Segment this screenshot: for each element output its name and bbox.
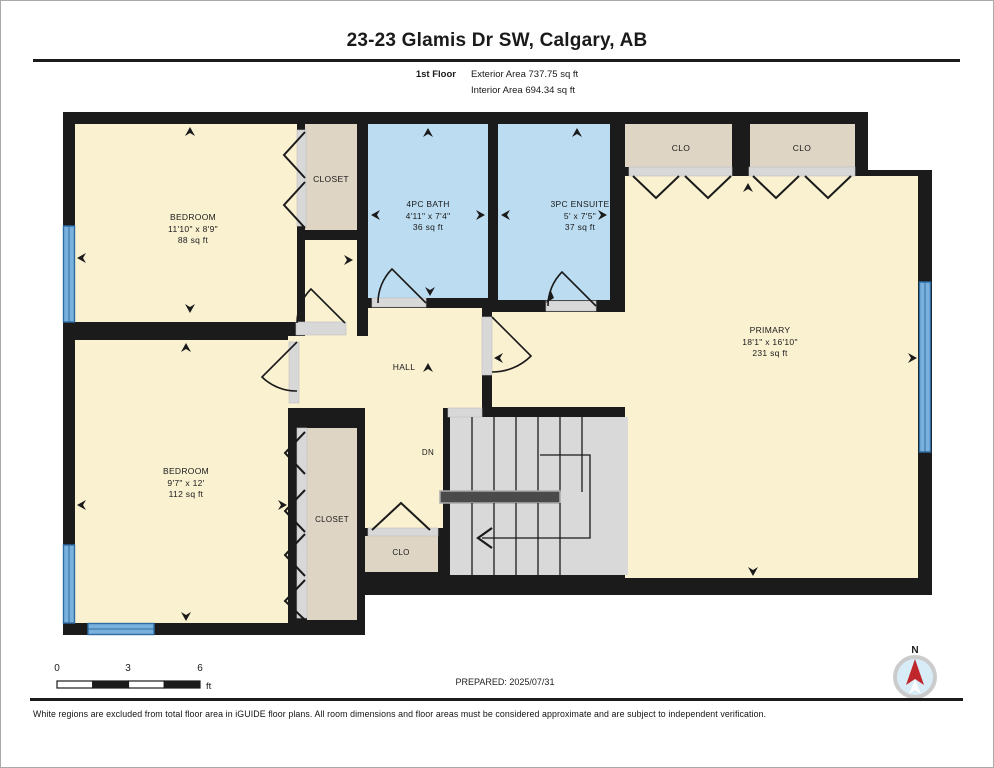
room-name: BEDROOM [168, 212, 218, 224]
room-label-hall: HALL [393, 362, 415, 374]
room-name: CLO [392, 547, 409, 559]
stairs-dn-label: DN [422, 447, 434, 459]
room-dims: 18'1" x 16'10" [742, 337, 798, 349]
compass-icon [895, 657, 935, 697]
room-label-ensuite: 3PC ENSUITE 5' x 7'5" 37 sq ft [550, 199, 609, 234]
room-label-clo3: CLO [392, 547, 409, 559]
room-dims: 11'10" x 8'9" [168, 224, 218, 236]
room-nook [305, 240, 357, 336]
scale-unit: ft [206, 681, 211, 692]
prepared-date: PREPARED: 2025/07/31 [456, 677, 555, 687]
scale-tick-6: 6 [197, 663, 203, 674]
floorplan-drawing [0, 0, 994, 768]
room-name: CLOSET [313, 174, 349, 186]
room-name: 4PC BATH [406, 199, 451, 211]
room-name: PRIMARY [742, 325, 798, 337]
floorplan-sheet: 23-23 Glamis Dr SW, Calgary, AB 1st Floo… [0, 0, 994, 768]
room-label-closet1: CLOSET [313, 174, 349, 186]
room-name: HALL [393, 362, 415, 374]
room-area: 88 sq ft [168, 235, 218, 247]
room-name: CLOSET [315, 514, 349, 526]
room-primary [625, 176, 918, 578]
room-name: DN [422, 447, 434, 459]
stairs-railing [440, 491, 560, 503]
room-dims: 5' x 7'5" [550, 211, 609, 223]
room-label-bedroom1: BEDROOM 11'10" x 8'9" 88 sq ft [168, 212, 218, 247]
room-dims: 9'7" x 12' [163, 478, 209, 490]
room-area: 36 sq ft [406, 222, 451, 234]
room-label-clo1: CLO [672, 143, 690, 155]
room-area: 231 sq ft [742, 348, 798, 360]
room-label-bath: 4PC BATH 4'11" x 7'4" 36 sq ft [406, 199, 451, 234]
footer-divider [30, 698, 963, 701]
scale-tick-3: 3 [125, 663, 131, 674]
room-name: CLO [793, 143, 811, 155]
room-primary-entry [492, 312, 632, 407]
room-name: BEDROOM [163, 466, 209, 478]
room-name: 3PC ENSUITE [550, 199, 609, 211]
disclaimer-text: White regions are excluded from total fl… [33, 709, 766, 719]
room-label-bedroom2: BEDROOM 9'7" x 12' 112 sq ft [163, 466, 209, 501]
room-area: 112 sq ft [163, 489, 209, 501]
compass-north-label: N [911, 645, 918, 656]
room-area: 37 sq ft [550, 222, 609, 234]
room-name: CLO [672, 143, 690, 155]
scale-tick-0: 0 [54, 663, 60, 674]
room-dims: 4'11" x 7'4" [406, 211, 451, 223]
room-label-closet2: CLOSET [315, 514, 349, 526]
room-label-clo2: CLO [793, 143, 811, 155]
scale-bar [57, 681, 200, 688]
room-label-primary: PRIMARY 18'1" x 16'10" 231 sq ft [742, 325, 798, 360]
